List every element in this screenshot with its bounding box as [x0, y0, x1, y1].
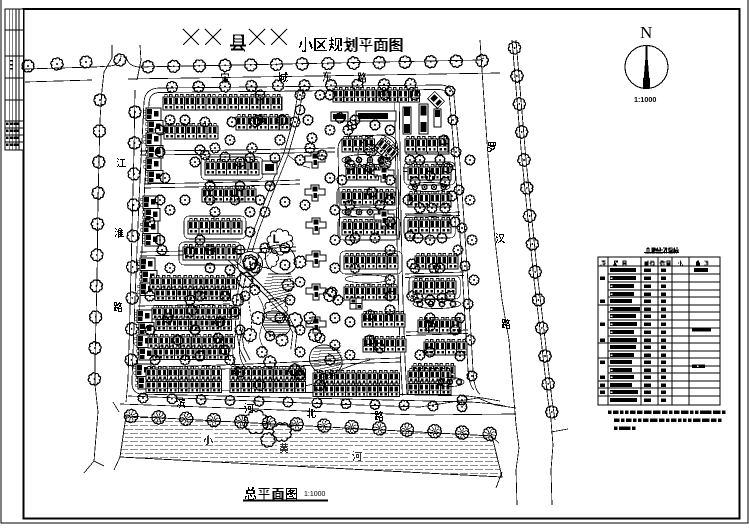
svg-text:1:1000: 1:1000 — [304, 491, 326, 498]
svg-text:1:1000: 1:1000 — [634, 95, 656, 104]
svg-text:N: N — [640, 23, 652, 42]
